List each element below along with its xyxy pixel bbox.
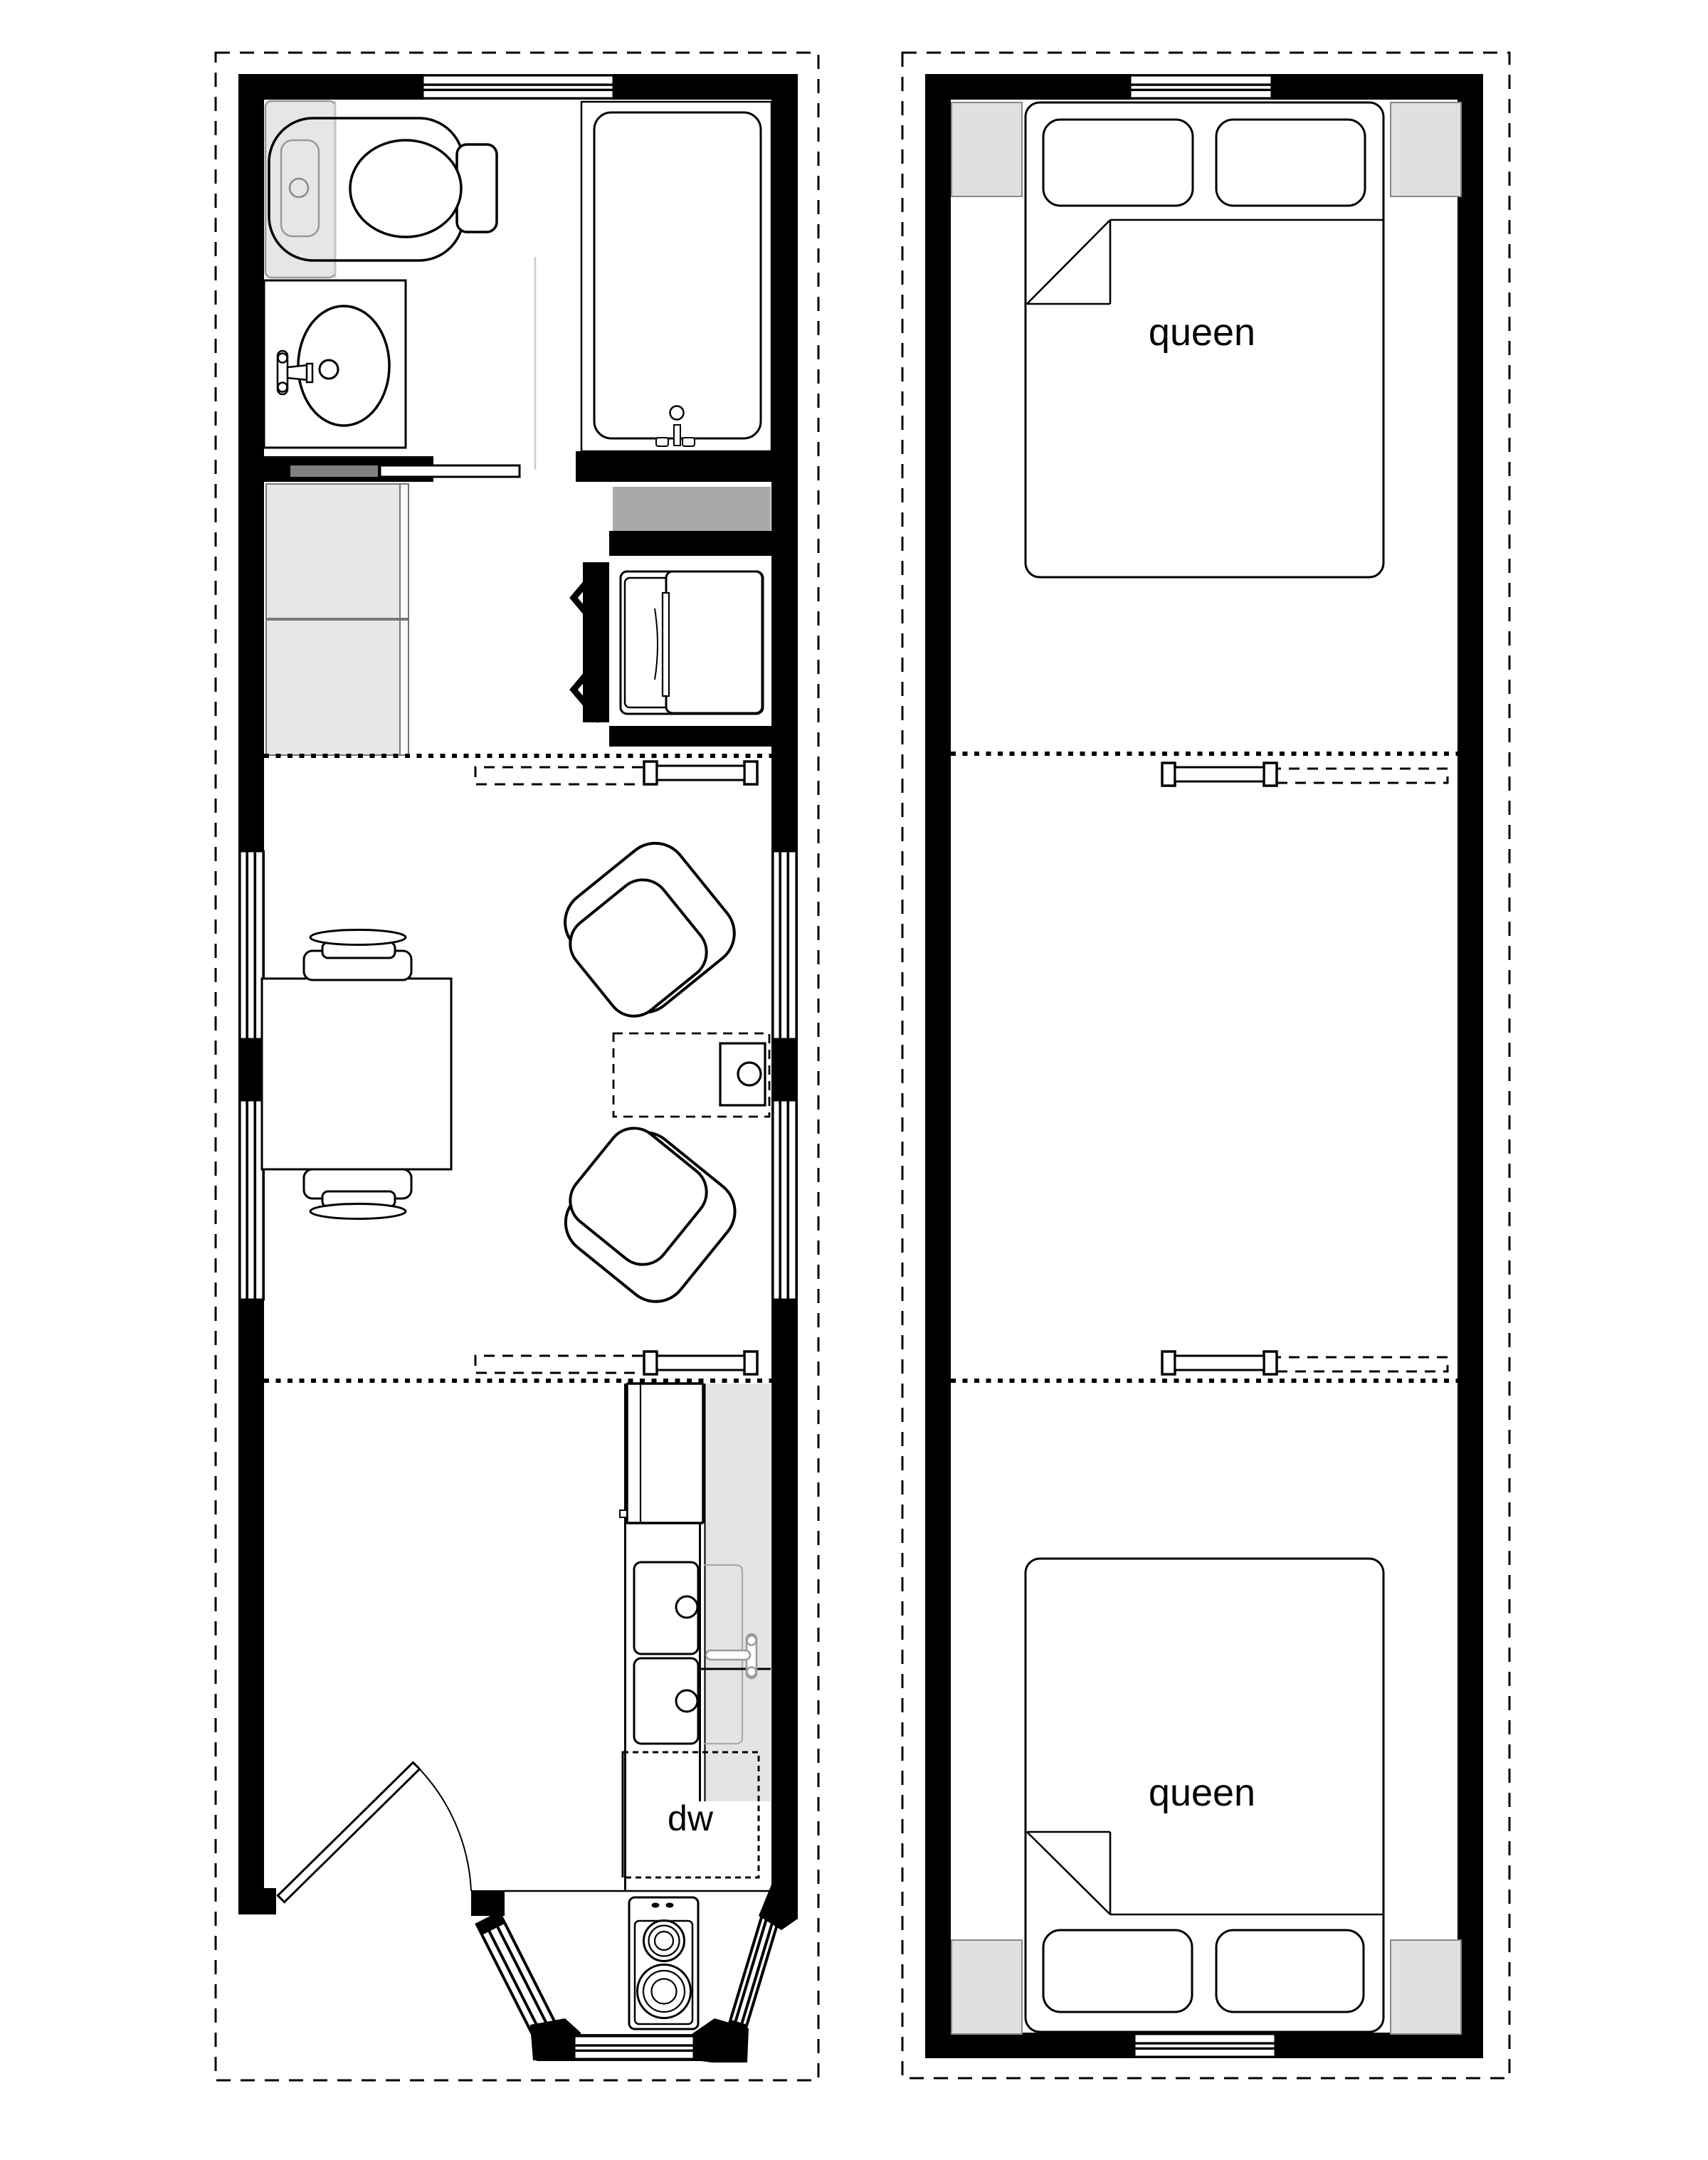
svg-text:queen: queen: [1149, 311, 1255, 354]
svg-text:dw: dw: [668, 1798, 714, 1838]
svg-text:queen: queen: [1149, 1771, 1255, 1814]
